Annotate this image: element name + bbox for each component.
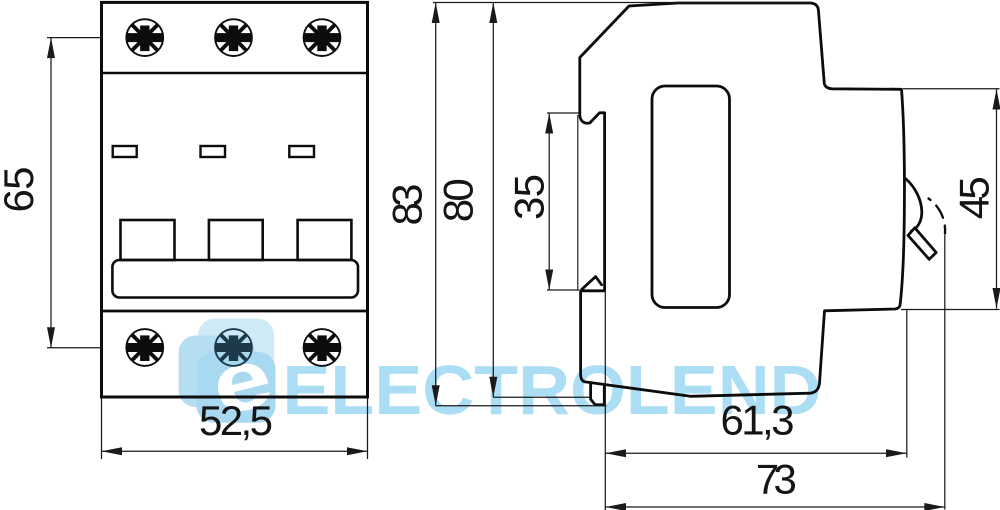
svg-text:61,3: 61,3 [721, 397, 795, 444]
svg-text:73: 73 [756, 455, 797, 502]
svg-text:83: 83 [384, 184, 431, 226]
svg-text:35: 35 [506, 174, 553, 220]
svg-text:45: 45 [951, 176, 998, 219]
svg-text:65: 65 [0, 167, 42, 213]
svg-text:80: 80 [435, 178, 482, 222]
svg-text:52,5: 52,5 [199, 397, 273, 444]
